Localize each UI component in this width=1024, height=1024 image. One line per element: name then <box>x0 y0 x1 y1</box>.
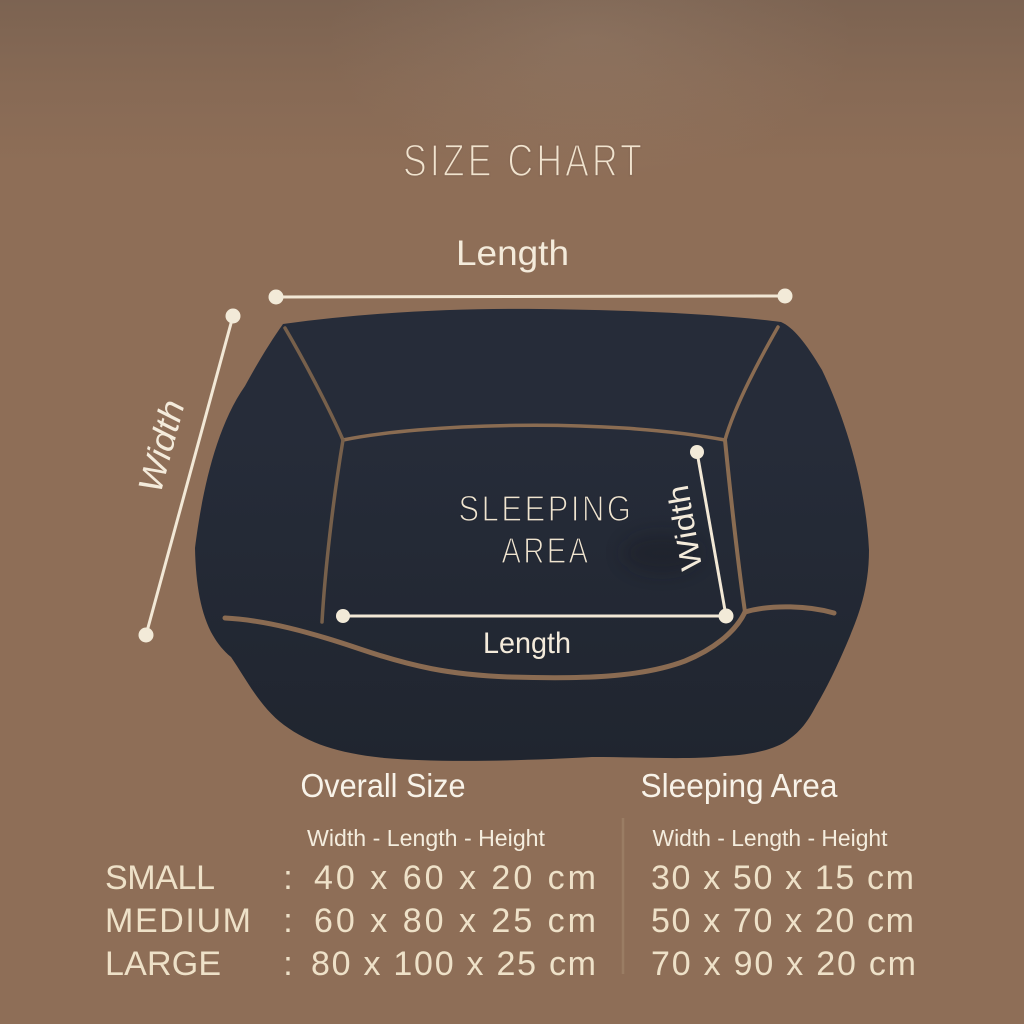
svg-text:80 x 100 x 25 cm: 80 x 100 x 25 cm <box>311 945 596 983</box>
svg-text:AREA: AREA <box>502 530 591 571</box>
svg-text:Overall Size: Overall Size <box>301 767 466 804</box>
svg-text:70 x 90 x 20 cm: 70 x 90 x 20 cm <box>651 945 916 983</box>
svg-text:Length: Length <box>456 234 569 273</box>
svg-text:Width - Length - Height: Width - Length - Height <box>307 825 546 851</box>
svg-text:60 x 80 x 25 cm: 60 x 80 x 25 cm <box>314 902 596 940</box>
svg-text:SIZE CHART: SIZE CHART <box>403 135 645 186</box>
svg-text::: : <box>283 945 292 983</box>
svg-text:Sleeping Area: Sleeping Area <box>641 767 839 804</box>
svg-text::: : <box>283 859 292 897</box>
svg-text:Width - Length - Height: Width - Length - Height <box>653 825 889 851</box>
svg-text:50 x 70 x 20 cm: 50 x 70 x 20 cm <box>651 902 914 940</box>
svg-text:MEDIUM: MEDIUM <box>105 902 251 940</box>
svg-text:SLEEPING: SLEEPING <box>459 488 634 529</box>
svg-text:Width: Width <box>131 396 192 497</box>
svg-text:40 x 60 x 20 cm: 40 x 60 x 20 cm <box>314 859 596 897</box>
svg-text:30 x 50 x 15 cm: 30 x 50 x 15 cm <box>651 859 914 897</box>
svg-text:LARGE: LARGE <box>105 945 221 983</box>
svg-text:Length: Length <box>483 627 571 660</box>
svg-text::: : <box>283 902 292 940</box>
svg-text:SMALL: SMALL <box>105 859 215 897</box>
